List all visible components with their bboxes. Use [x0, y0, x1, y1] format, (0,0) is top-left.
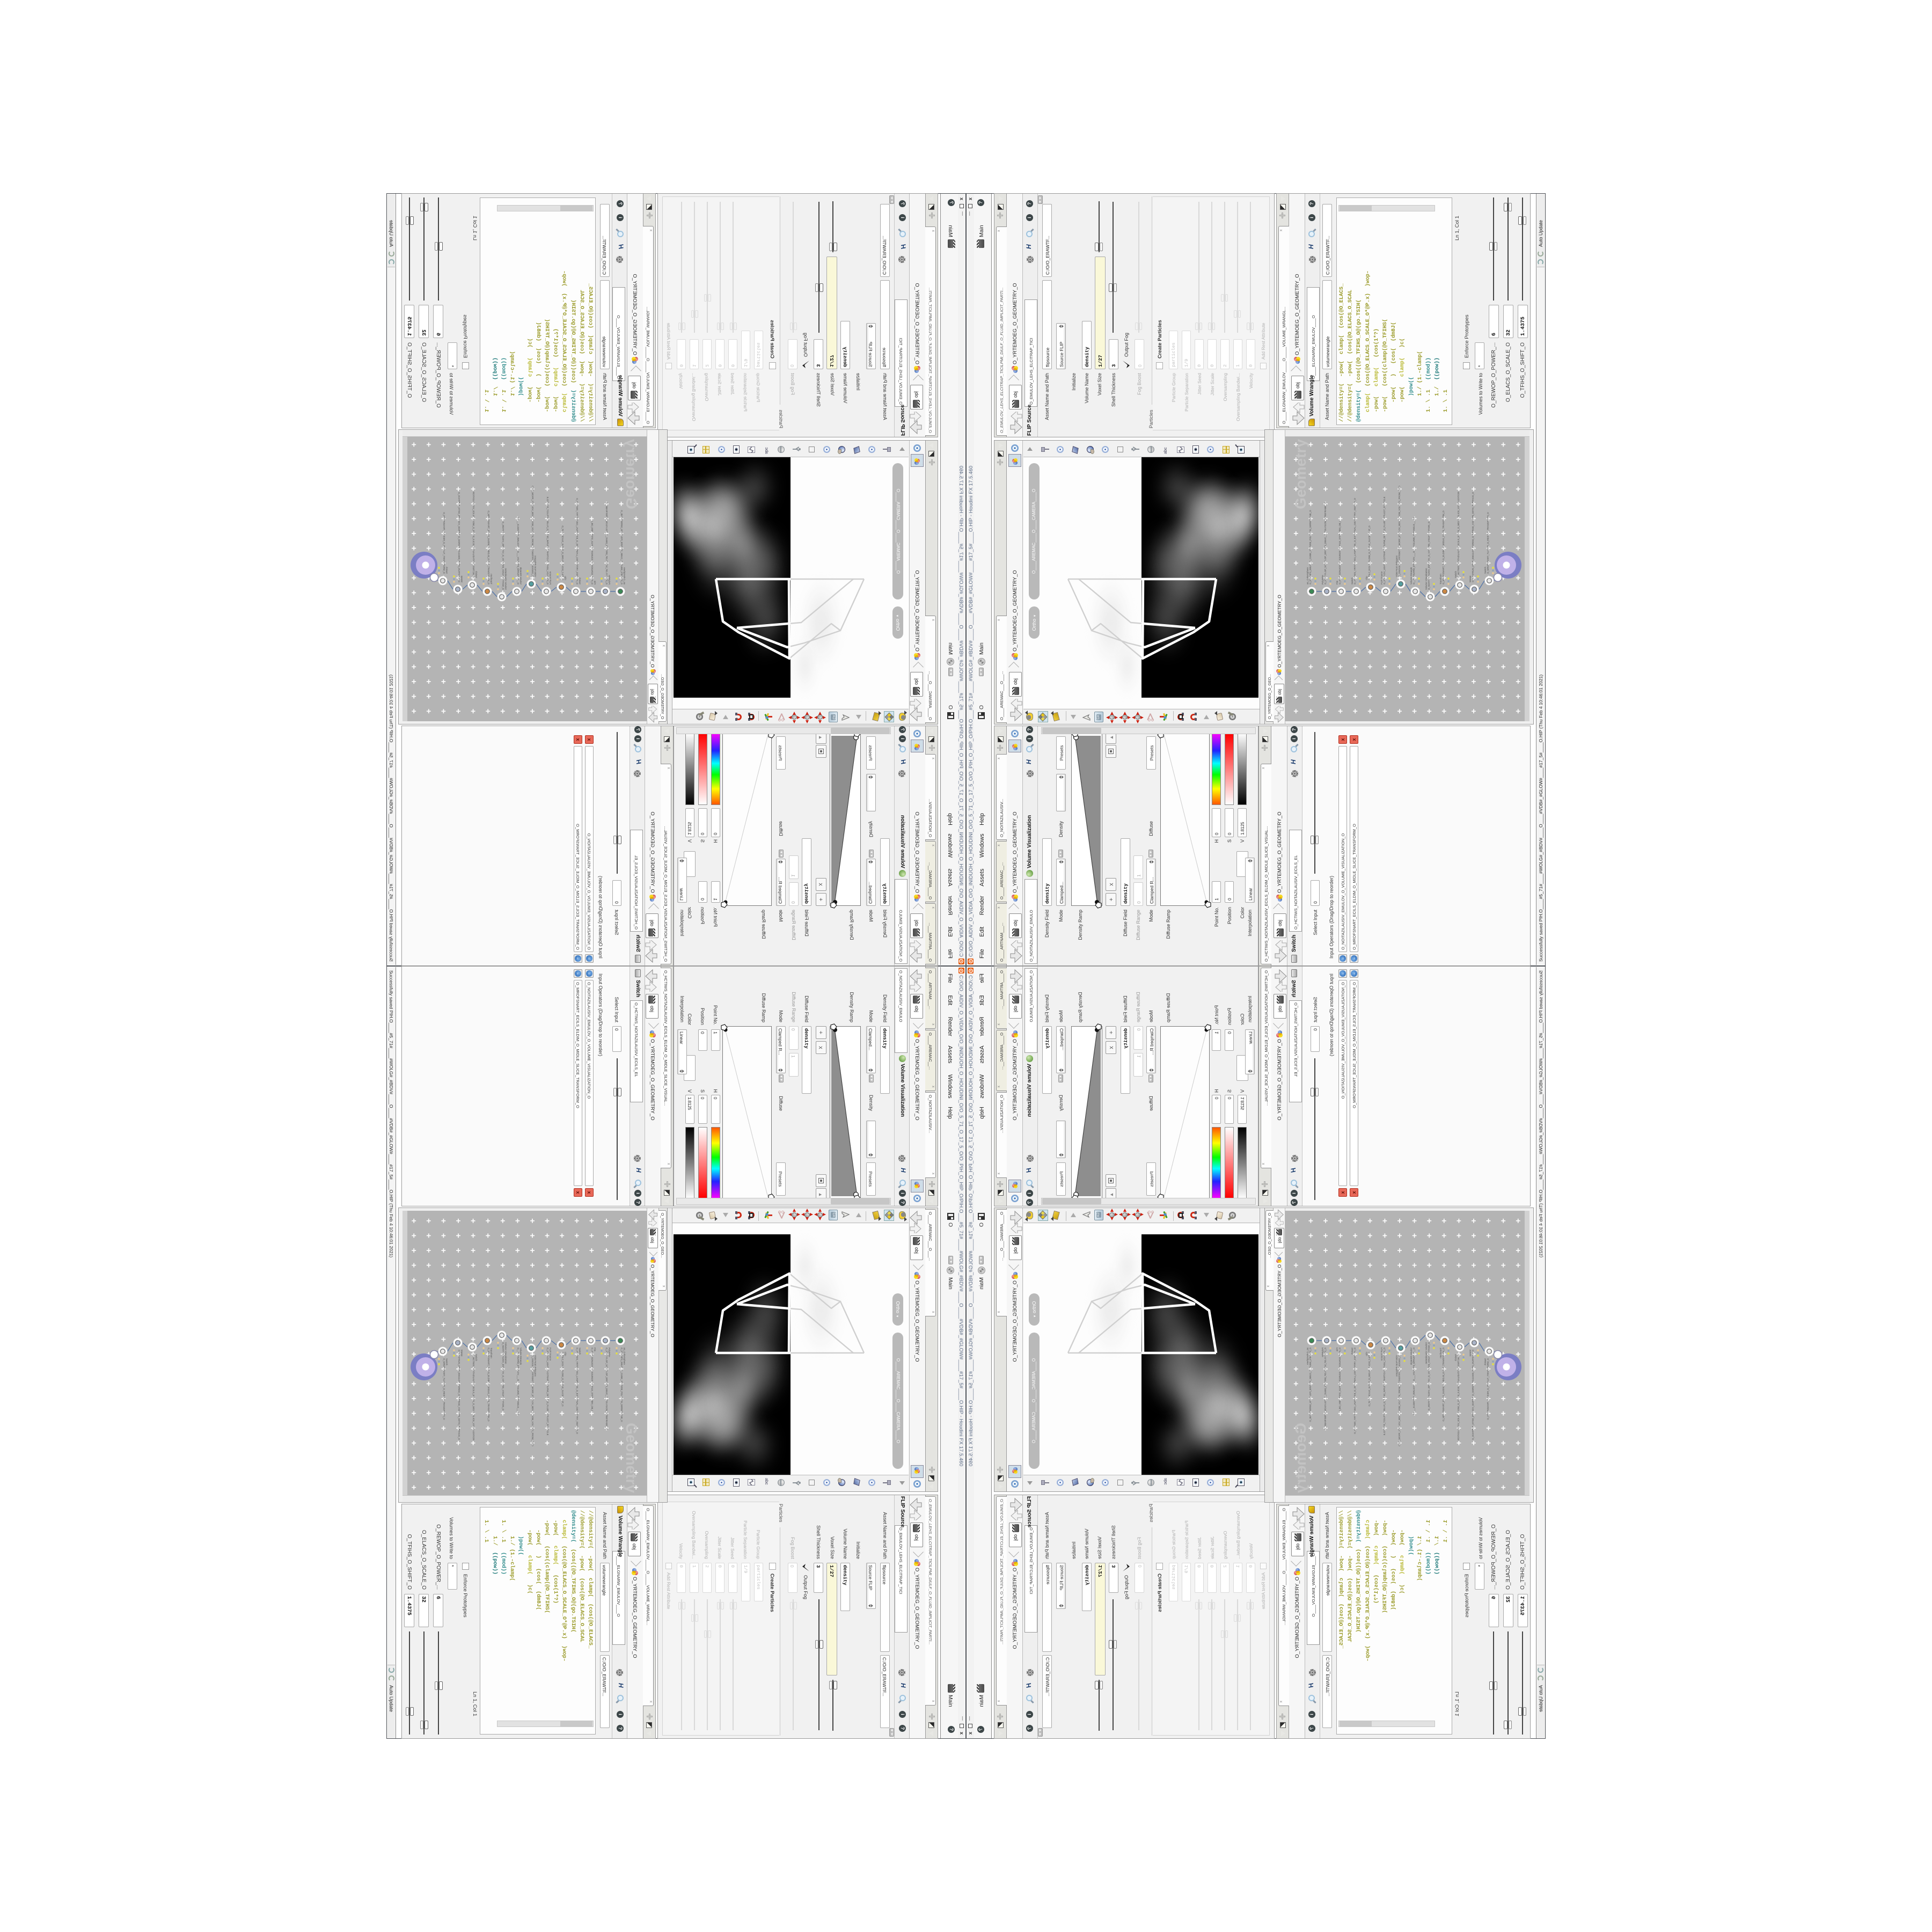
svg-text:O_MROFSNART_ECILS_ELDIM_O_MIDL: O_MROFSNART_ECILS_ELDIM_O_MIDLE_SLICE_TR… [487, 1348, 490, 1422]
svg-text:O_SNOGILOP_YRTEMOEG_MORF_EMULO: O_SNOGILOP_YRTEMOEG_MORF_EMULOV_BDV_D_VD… [1398, 486, 1401, 577]
svg-text:Volume Wrangle: Volume Wrangle [519, 567, 522, 584]
svg-text:O_MROFSNART_TLUZER_O_RESULT_TR: O_MROFSNART_TLUZER_O_RESULT_TRANSFORM_O [443, 1358, 445, 1420]
svg-text:O_EREHPS_EBUC_O_CUBE_SPHERE_PO: O_EREHPS_EBUC_O_CUBE_SPHERE_POLYGON_WIRE… [1309, 510, 1312, 584]
svg-text:O_EMULOV_LEHS_ELCITRAP_TICILPM: O_EMULOV_LEHS_ELCITRAP_TICILPMI_DIULF_D_… [1383, 1348, 1386, 1436]
svg-text:O__ELGNARW_EMULOV___O___VOLUME: O__ELGNARW_EMULOV___O___VOLUME_WRANGLE__… [517, 1348, 519, 1415]
svg-text:O_HCTIWS_NOITAZILAUSIV_ECILS_E: O_HCTIWS_NOITAZILAUSIV_ECILS_ELDIM_O_MID… [1457, 492, 1460, 578]
svg-text:an_CubeSphere: an_CubeSphere [623, 1348, 626, 1365]
svg-text:O_ERIWYLOP_NOGYLOP_EREHPS_EBUC: O_ERIWYLOP_NOGYLOP_EREHPS_EBUC_O_POLYGON… [605, 1348, 608, 1430]
svg-text:O_ERIWYLOP_NOGYLOP_EREHPS_EBUC: O_ERIWYLOP_NOGYLOP_EREHPS_EBUC_O_POLYGON… [605, 502, 608, 584]
svg-text:Volume Visualization: Volume Visualization [504, 1342, 507, 1364]
svg-text:O_PILC_ECILS_ELDIM_O_MIDLE_SLI: O_PILC_ECILS_ELDIM_O_MIDLE_SLICE_CLIP_O [561, 525, 564, 580]
svg-text:File: File [594, 580, 596, 584]
svg-text:O_NOITAZILAUSIV_EMULOV_O_VOLUM: O_NOITAZILAUSIV_EMULOV_O_VOLUME_VISUALIZ… [502, 521, 504, 590]
svg-text:Transform: Transform [490, 1348, 493, 1358]
svg-text:O_EMULOV_LEHS_ELCITRAP_TICILPM: O_EMULOV_LEHS_ELCITRAP_TICILPMI_DIULF_D_… [546, 496, 549, 584]
svg-text:O__ELGNARW_EMULOV___O___VOLUME: O__ELGNARW_EMULOV___O___VOLUME_WRANGLE__… [517, 517, 519, 584]
svg-text:Geometry: Geometry [623, 439, 640, 509]
svg-text:O_EREHPS_EBUC_O_CUBE_SPHERE_PO: O_EREHPS_EBUC_O_CUBE_SPHERE_POLYGON_WIRE… [620, 510, 623, 584]
svg-text:O_MROFSNART_TLUZER_O_RESULT_TR: O_MROFSNART_TLUZER_O_RESULT_TRANSFORM_O [443, 512, 445, 574]
svg-text:Switch: Switch [445, 567, 448, 574]
svg-text:O_HCTIWS_YRTEMOEG_LANRETXE_O_E: O_HCTIWS_YRTEMOEG_LANRETXE_O_EXTERNAL_GE… [1353, 498, 1356, 584]
svg-text:O_MROFSNART_ECILS_ELDIM_O_MIDL: O_MROFSNART_ECILS_ELDIM_O_MIDLE_SLICE_TR… [1442, 1348, 1445, 1422]
svg-text:Switch: Switch [579, 577, 581, 584]
svg-text:O_EMULOV_LEHS_ELCITRAP_TICILPM: O_EMULOV_LEHS_ELCITRAP_TICILPMI_DIULF_D_… [1383, 496, 1386, 584]
svg-text:an_CubeSphere: an_CubeSphere [623, 567, 626, 584]
svg-text:O_MROFSNART_ECILS_ELDIM_O_MIDL: O_MROFSNART_ECILS_ELDIM_O_MIDLE_SLICE_TR… [487, 510, 490, 584]
svg-text:O_MROFSNART_TLUZER_O_RESULT_TR: O_MROFSNART_TLUZER_O_RESULT_TRANSFORM_O [1487, 1358, 1489, 1420]
svg-text:PolyWire: PolyWire [608, 1348, 611, 1357]
svg-text:Clip: Clip [564, 1352, 567, 1356]
svg-text:O_EREHPS_EBUC_O_CUBE_SPHERE_PO: O_EREHPS_EBUC_O_CUBE_SPHERE_POLYGON_WIRE… [1309, 1348, 1312, 1422]
svg-text:O_ERIWYLOP_NOGYLOP_EREHPS_EBUC: O_ERIWYLOP_NOGYLOP_EREHPS_EBUC_O_POLYGON… [1324, 1348, 1327, 1430]
svg-text:O_HCTIWS_NOITAZILAUSIV_ECILS_E: O_HCTIWS_NOITAZILAUSIV_ECILS_ELDIM_O_MID… [1457, 1354, 1460, 1440]
svg-text:O_ELIF_SDNUOS_O_SOUNDS_O_FILE_: O_ELIF_SDNUOS_O_SOUNDS_O_FILE_STEP_30M_O… [591, 521, 594, 584]
svg-text:PolyWire: PolyWire [608, 575, 611, 584]
svg-text:Switch: Switch [445, 1358, 448, 1365]
svg-text:O_HCTIWS_YRTEMOEG_LANRETXE_O_E: O_HCTIWS_YRTEMOEG_LANRETXE_O_EXTERNAL_GE… [576, 1348, 579, 1434]
svg-text:O_HCTIWS_NOITAZILAUSIV_ECILS_E: O_HCTIWS_NOITAZILAUSIV_ECILS_ELDIM_O_MID… [472, 492, 475, 578]
svg-text:O_ELIF_SDNUOS_O_SOUNDS_O_FILE_: O_ELIF_SDNUOS_O_SOUNDS_O_FILE_STEP_30M_O… [1338, 521, 1341, 584]
svg-text:Switch: Switch [475, 571, 478, 578]
svg-text:O_ECAFRUS_HTIW_EMULOV_EGREM_O_: O_ECAFRUS_HTIW_EMULOV_EGREM_O_MERGE_VOLU… [458, 1350, 460, 1440]
svg-text:O_NOITAZILAUSIV_EMULOV_O_VOLUM: O_NOITAZILAUSIV_EMULOV_O_VOLUME_VISUALIZ… [502, 1342, 504, 1411]
svg-text:O__ELGNARW_EMULOV___O___VOLUME: O__ELGNARW_EMULOV___O___VOLUME_WRANGLE__… [1413, 517, 1415, 584]
svg-text:Geometry: Geometry [623, 1423, 640, 1493]
svg-text:O_HCTIWS_YRTEMOEG_LANRETXE_O_E: O_HCTIWS_YRTEMOEG_LANRETXE_O_EXTERNAL_GE… [1353, 1348, 1356, 1434]
svg-text:File: File [594, 1348, 596, 1352]
svg-text:O_ECAFRUS_HTIW_EMULOV_EGREM_O_: O_ECAFRUS_HTIW_EMULOV_EGREM_O_MERGE_VOLU… [458, 492, 460, 582]
svg-text:Volume Visualization: Volume Visualization [504, 568, 507, 590]
svg-text:Geometry: Geometry [1292, 1423, 1309, 1493]
svg-text:O_SNOGILOP_YRTEMOEG_MORF_EMULO: O_SNOGILOP_YRTEMOEG_MORF_EMULOV_BDV_D_VD… [1398, 1355, 1401, 1446]
svg-text:O_ERIWYLOP_NOGYLOP_EREHPS_EBUC: O_ERIWYLOP_NOGYLOP_EREHPS_EBUC_O_POLYGON… [1324, 502, 1327, 584]
svg-text:O_SNOGILOP_YRTEMOEG_MORF_EMULO: O_SNOGILOP_YRTEMOEG_MORF_EMULOV_BDV_D_VD… [531, 486, 534, 577]
svg-text:O_PILC_ECILS_ELDIM_O_MIDLE_SLI: O_PILC_ECILS_ELDIM_O_MIDLE_SLICE_CLIP_O [1368, 525, 1371, 580]
svg-text:O_SNOGILOP_YRTEMOEG_MORF_EMULO: O_SNOGILOP_YRTEMOEG_MORF_EMULOV_BDV_D_VD… [531, 1355, 534, 1446]
svg-text:O_ECAFRUS_HTIW_EMULOV_EGREM_O_: O_ECAFRUS_HTIW_EMULOV_EGREM_O_MERGE_VOLU… [1472, 1350, 1474, 1440]
svg-text:Switch: Switch [475, 1354, 478, 1361]
svg-text:Merge: Merge [460, 575, 463, 582]
svg-text:O_NOITAZILAUSIV_EMULOV_O_VOLUM: O_NOITAZILAUSIV_EMULOV_O_VOLUME_VISUALIZ… [1428, 1342, 1430, 1411]
svg-text:Geometry: Geometry [1292, 439, 1309, 509]
svg-text:O_HCTIWS_YRTEMOEG_LANRETXE_O_E: O_HCTIWS_YRTEMOEG_LANRETXE_O_EXTERNAL_GE… [576, 498, 579, 584]
svg-text:O_ELIF_SDNUOS_O_SOUNDS_O_FILE_: O_ELIF_SDNUOS_O_SOUNDS_O_FILE_STEP_30M_O… [591, 1348, 594, 1411]
svg-text:O_MROFSNART_TLUZER_O_RESULT_TR: O_MROFSNART_TLUZER_O_RESULT_TRANSFORM_O [1487, 512, 1489, 574]
svg-text:FLIP Source: FLIP Source [549, 1348, 552, 1361]
svg-text:Transform: Transform [490, 574, 493, 584]
svg-text:O_ECAFRUS_HTIW_EMULOV_EGREM_O_: O_ECAFRUS_HTIW_EMULOV_EGREM_O_MERGE_VOLU… [1472, 492, 1474, 582]
svg-text:O_EMULOV_LEHS_ELCITRAP_TICILPM: O_EMULOV_LEHS_ELCITRAP_TICILPMI_DIULF_D_… [546, 1348, 549, 1436]
svg-text:VDB From Polygons: VDB From Polygons [534, 1355, 537, 1377]
svg-text:Switch: Switch [579, 1348, 581, 1355]
svg-text:O_PILC_ECILS_ELDIM_O_MIDLE_SLI: O_PILC_ECILS_ELDIM_O_MIDLE_SLICE_CLIP_O [1368, 1352, 1371, 1407]
svg-text:VDB From Polygons: VDB From Polygons [534, 555, 537, 577]
svg-text:O_NOITAZILAUSIV_EMULOV_O_VOLUM: O_NOITAZILAUSIV_EMULOV_O_VOLUME_VISUALIZ… [1428, 521, 1430, 590]
svg-text:Clip: Clip [564, 576, 567, 580]
svg-text:Merge: Merge [460, 1350, 463, 1357]
svg-text:Volume Wrangle: Volume Wrangle [519, 1348, 522, 1365]
svg-text:O_MROFSNART_ECILS_ELDIM_O_MIDL: O_MROFSNART_ECILS_ELDIM_O_MIDLE_SLICE_TR… [1442, 510, 1445, 584]
svg-text:O_HCTIWS_NOITAZILAUSIV_ECILS_E: O_HCTIWS_NOITAZILAUSIV_ECILS_ELDIM_O_MID… [472, 1354, 475, 1440]
svg-text:O_PILC_ECILS_ELDIM_O_MIDLE_SLI: O_PILC_ECILS_ELDIM_O_MIDLE_SLICE_CLIP_O [561, 1352, 564, 1407]
svg-text:O_ELIF_SDNUOS_O_SOUNDS_O_FILE_: O_ELIF_SDNUOS_O_SOUNDS_O_FILE_STEP_30M_O… [1338, 1348, 1341, 1411]
svg-text:O__ELGNARW_EMULOV___O___VOLUME: O__ELGNARW_EMULOV___O___VOLUME_WRANGLE__… [1413, 1348, 1415, 1415]
svg-text:O_EREHPS_EBUC_O_CUBE_SPHERE_PO: O_EREHPS_EBUC_O_CUBE_SPHERE_POLYGON_WIRE… [620, 1348, 623, 1422]
svg-text:FLIP Source: FLIP Source [549, 571, 552, 584]
